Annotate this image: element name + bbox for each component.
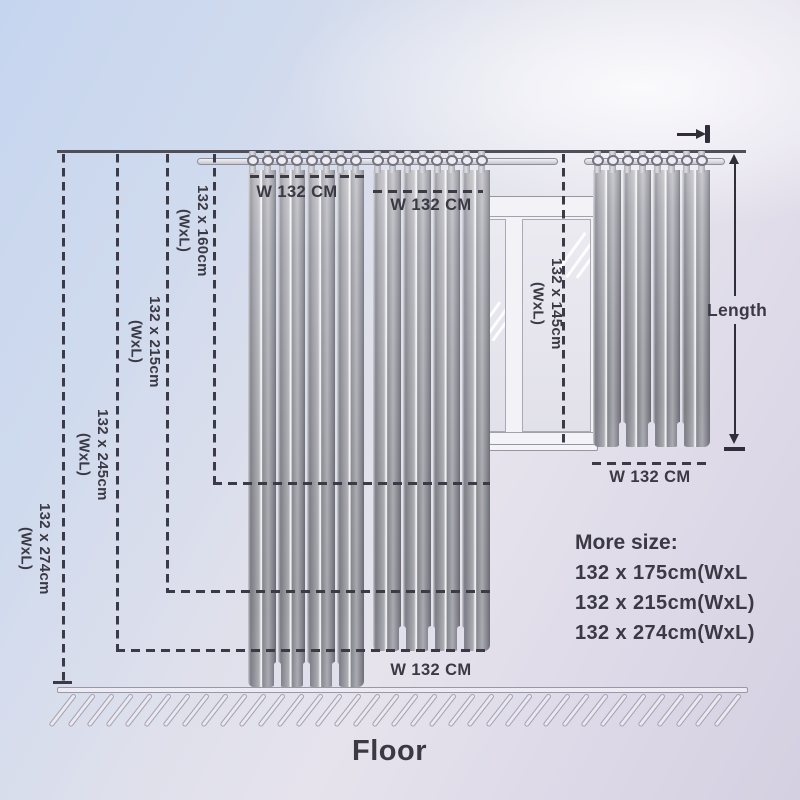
more-size-title: More size: xyxy=(575,531,795,555)
grommet-ring-icon xyxy=(387,155,399,166)
panel-gap-slit xyxy=(332,662,339,688)
curtain-panel xyxy=(248,170,276,687)
grommet-ring-icon xyxy=(696,155,708,166)
size-label-160: 132 x 160cm (WxL) xyxy=(169,172,211,290)
size-label-145: 132 x 145cm (WxL) xyxy=(523,245,565,363)
window-lintel xyxy=(482,197,594,217)
grommet-ring-icon xyxy=(461,155,473,166)
grommet-ring-icon xyxy=(637,155,649,166)
grommet-ring-icon xyxy=(262,155,274,166)
grommet-ring-icon xyxy=(350,155,362,166)
size-245-line-horizontal xyxy=(116,649,490,652)
curtain-panel xyxy=(373,170,401,651)
size-label-160-unit: (WxL) xyxy=(174,172,193,290)
width-label-top-middle: W 132 CM xyxy=(383,196,479,215)
panel-gap-slit xyxy=(648,422,655,448)
grommet-ring-icon xyxy=(622,155,634,166)
curtain-panel xyxy=(462,170,490,651)
size-label-245: 132 x 245cm (WxL) xyxy=(69,396,111,514)
curtain-panel-group-right xyxy=(593,170,710,447)
grommet-ring-icon xyxy=(592,155,604,166)
window-sill xyxy=(476,444,598,451)
size-245-line xyxy=(116,154,119,651)
size-label-274-value: 132 x 274cm xyxy=(34,490,53,608)
curtain-panel xyxy=(278,170,306,687)
panel-gap-slit xyxy=(303,662,310,688)
size-label-145-value: 132 x 145cm xyxy=(546,245,565,363)
grommet-ring-icon xyxy=(681,155,693,166)
size-274-end-tick xyxy=(53,681,72,684)
size-215-line-horizontal xyxy=(166,590,490,593)
curtain-panel xyxy=(307,170,335,687)
width-label-right: W 132 CM xyxy=(602,468,698,487)
size-274-line xyxy=(62,154,65,683)
size-label-215-unit: (WxL) xyxy=(126,283,145,401)
width-ruler-top-middle xyxy=(373,190,483,193)
width-label-top-left: W 132 CM xyxy=(249,183,345,202)
size-label-215-value: 132 x 215cm xyxy=(144,283,163,401)
size-label-160-value: 132 x 160cm xyxy=(192,172,211,290)
curtain-size-diagram: { "diagram": { "left_sizes": [ {"size": … xyxy=(0,0,800,800)
size-label-215: 132 x 215cm (WxL) xyxy=(121,283,163,401)
width-ruler-right xyxy=(592,462,708,465)
grommet-ring-icon xyxy=(417,155,429,166)
panel-gap-slit xyxy=(619,422,626,448)
grommet-ring-icon xyxy=(247,155,259,166)
curtain-panel xyxy=(653,170,681,447)
curtain-panel-group-left xyxy=(248,170,364,687)
arrow-to-bar-icon xyxy=(677,124,711,144)
length-arrow-end-bar xyxy=(724,447,745,451)
width-label-bottom: W 132 CM xyxy=(383,661,479,680)
curtain-panel xyxy=(403,170,431,651)
size-label-274-unit: (WxL) xyxy=(16,490,35,608)
length-arrow-head-bottom xyxy=(729,434,739,444)
curtain-panel xyxy=(337,170,365,687)
grommet-ring-icon xyxy=(446,155,458,166)
grommet-ring-icon xyxy=(402,155,414,166)
curtain-panel-group-middle xyxy=(373,170,490,651)
more-size-option: 132 x 215cm(WxL) xyxy=(575,592,795,615)
floor-hatching xyxy=(0,692,800,726)
more-size-option: 132 x 175cm(WxL xyxy=(575,562,795,585)
grommet-ring-icon xyxy=(335,155,347,166)
grommet-ring-icon xyxy=(607,155,619,166)
width-ruler-top-left xyxy=(250,175,367,178)
size-label-245-unit: (WxL) xyxy=(74,396,93,514)
floor-label: Floor xyxy=(352,735,427,768)
curtain-panel xyxy=(433,170,461,651)
end-bar xyxy=(705,125,710,143)
curtain-panel xyxy=(593,170,621,447)
length-label: Length xyxy=(707,300,767,321)
grommet-ring-icon xyxy=(666,155,678,166)
length-arrow-line-upper xyxy=(734,162,737,296)
grommet-ring-icon xyxy=(476,155,488,166)
grommet-ring-icon xyxy=(306,155,318,166)
length-arrow-line-lower xyxy=(734,324,737,436)
grommet-ring-icon xyxy=(372,155,384,166)
size-160-line-horizontal xyxy=(213,482,490,485)
arrow-shaft xyxy=(677,133,698,136)
curtain-panel xyxy=(682,170,710,447)
size-label-145-unit: (WxL) xyxy=(528,245,547,363)
panel-gap-slit xyxy=(677,422,684,448)
more-size-option: 132 x 274cm(WxL) xyxy=(575,622,795,645)
size-160-line xyxy=(213,154,216,484)
size-label-245-value: 132 x 245cm xyxy=(92,396,111,514)
curtain-panel xyxy=(623,170,651,447)
more-size-block: More size: 132 x 175cm(WxL 132 x 215cm(W… xyxy=(575,531,795,645)
panel-gap-slit xyxy=(274,662,281,688)
size-label-274: 132 x 274cm (WxL) xyxy=(11,490,53,608)
